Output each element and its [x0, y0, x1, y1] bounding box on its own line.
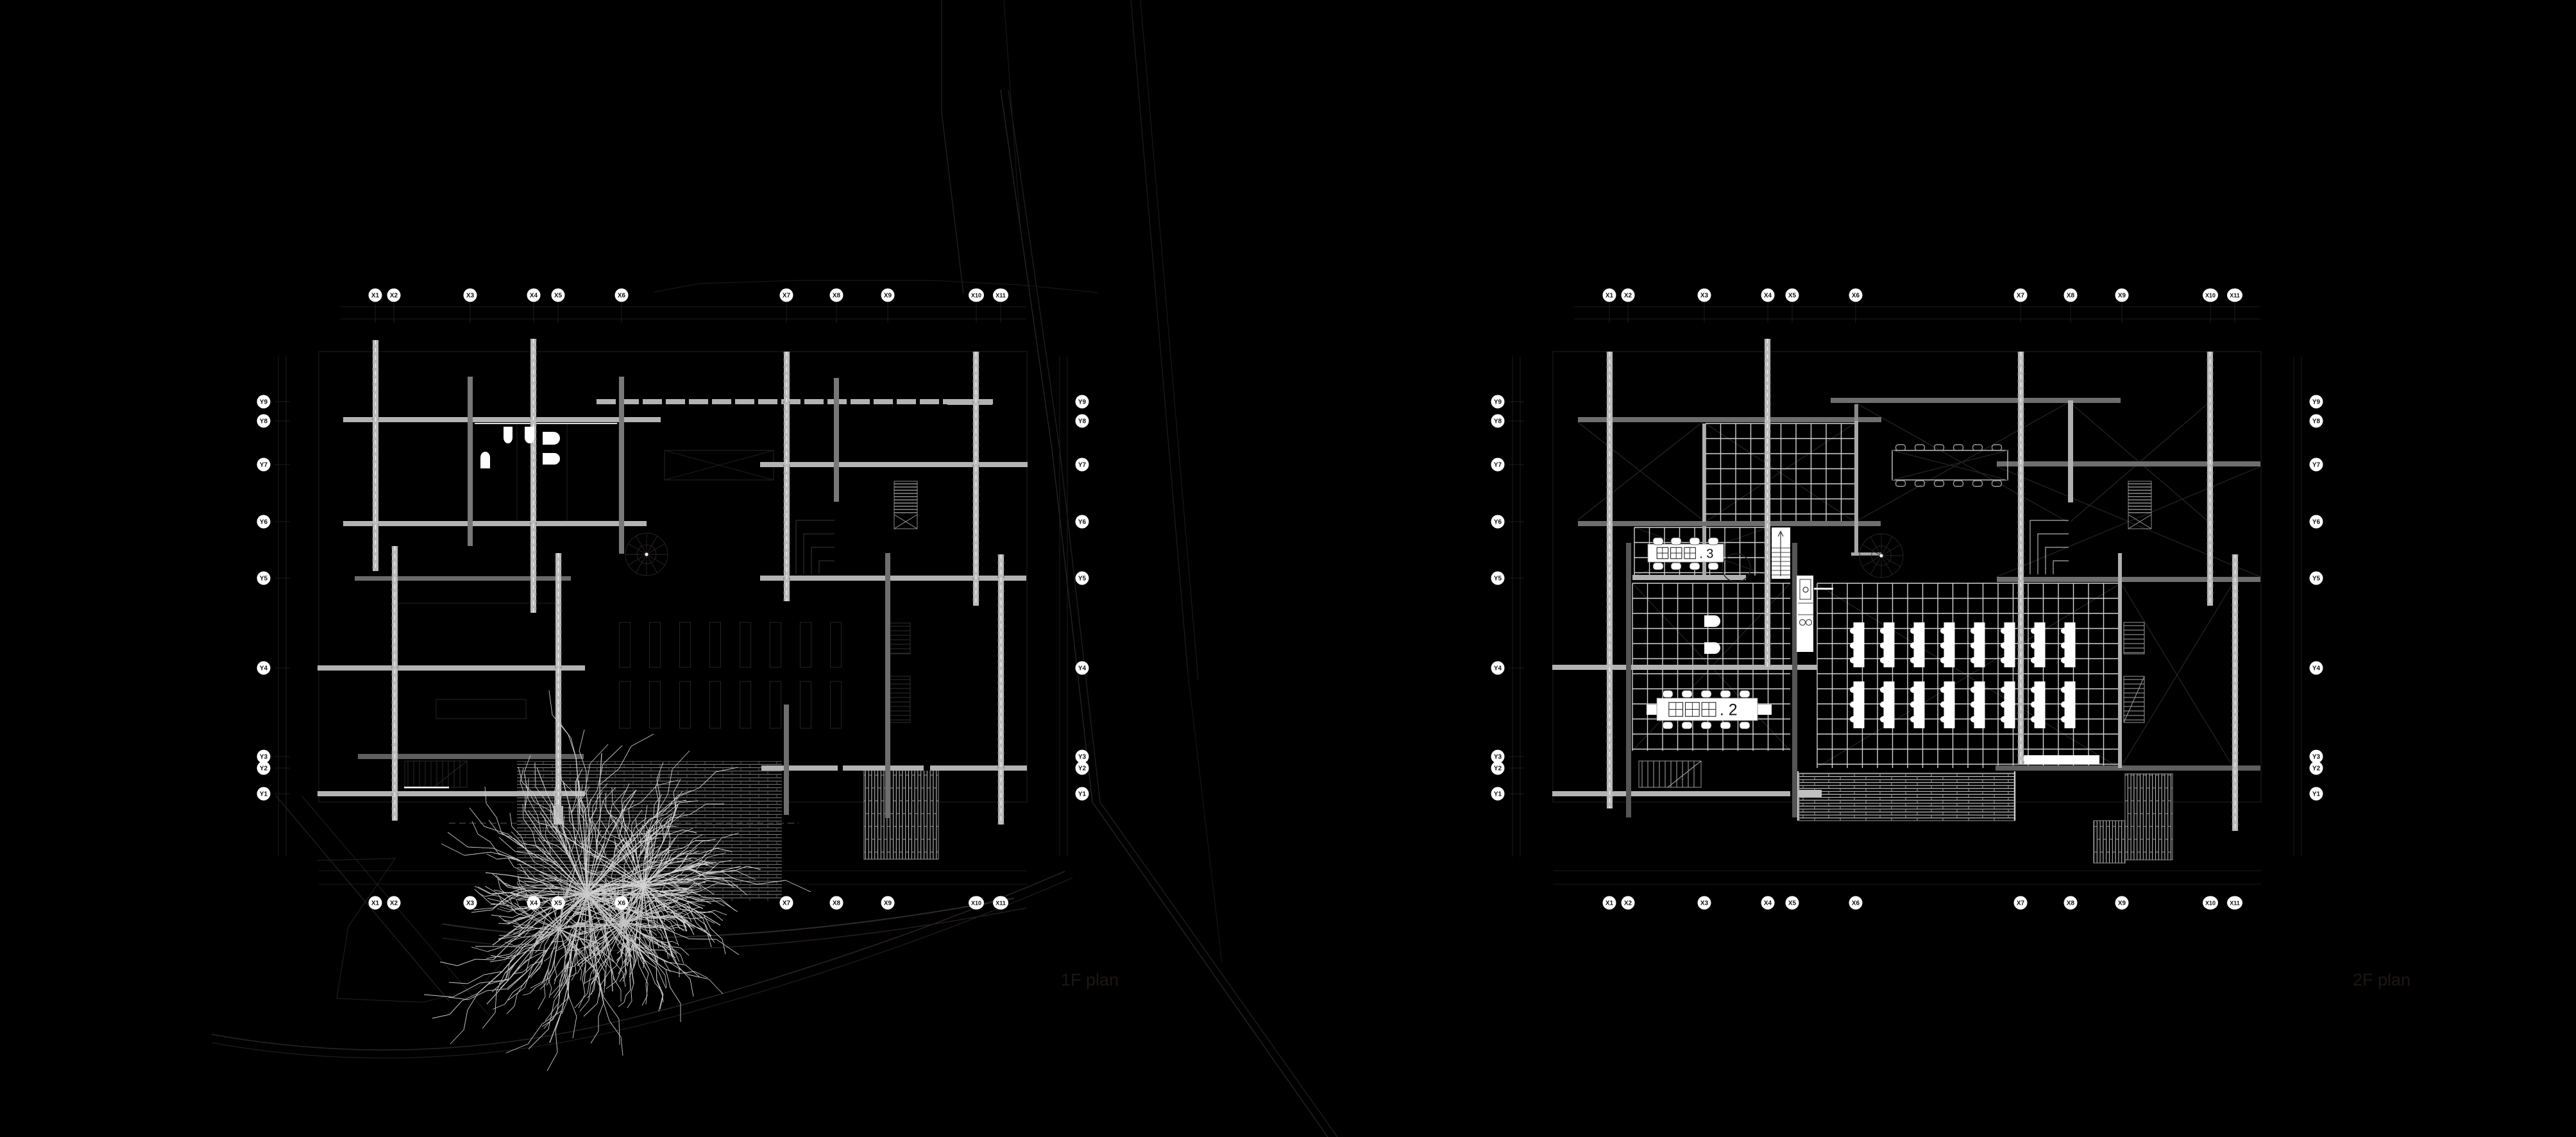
svg-text:X4: X4	[530, 292, 538, 299]
svg-text:X11: X11	[996, 292, 1006, 298]
svg-text:X5: X5	[1788, 292, 1797, 299]
svg-text:X4: X4	[1764, 900, 1772, 907]
svg-text:X11: X11	[2230, 292, 2240, 298]
svg-text:Y7: Y7	[1494, 461, 1502, 468]
svg-text:X3: X3	[1700, 292, 1709, 299]
svg-text:Y2: Y2	[1078, 765, 1087, 772]
svg-text:X3: X3	[466, 900, 475, 907]
svg-text:Y2: Y2	[260, 765, 268, 772]
svg-text:X4: X4	[530, 900, 538, 907]
svg-text:Y6: Y6	[2312, 518, 2321, 526]
svg-text:Y7: Y7	[260, 461, 268, 468]
svg-text:X8: X8	[2067, 292, 2075, 299]
svg-text:X9: X9	[2118, 900, 2126, 907]
svg-text:Y6: Y6	[1494, 518, 1502, 526]
svg-text:Y7: Y7	[1078, 461, 1087, 468]
svg-text:X2: X2	[1624, 292, 1632, 299]
svg-text:Y4: Y4	[1494, 665, 1502, 672]
svg-text:X3: X3	[466, 292, 475, 299]
svg-text:Y3: Y3	[1494, 753, 1502, 760]
svg-text:X9: X9	[884, 900, 892, 907]
svg-text:X2: X2	[390, 292, 398, 299]
svg-text:X6: X6	[618, 292, 626, 299]
svg-text:Y6: Y6	[260, 518, 268, 526]
svg-text:Y6: Y6	[1078, 518, 1087, 526]
svg-text:X7: X7	[783, 292, 791, 299]
svg-text:X5: X5	[1788, 900, 1797, 907]
svg-text:Y2: Y2	[2312, 765, 2321, 772]
svg-text:Y4: Y4	[1078, 665, 1087, 672]
svg-text:X1: X1	[371, 900, 380, 907]
svg-text:X11: X11	[996, 900, 1006, 906]
svg-text:X7: X7	[783, 900, 791, 907]
svg-text:Y7: Y7	[2312, 461, 2321, 468]
svg-text:X10: X10	[2205, 292, 2216, 298]
svg-text:X1: X1	[1606, 900, 1614, 907]
svg-text:X4: X4	[1764, 292, 1772, 299]
svg-text:Y8: Y8	[1078, 418, 1087, 425]
svg-text:Y5: Y5	[1078, 575, 1087, 582]
svg-text:Y4: Y4	[2312, 665, 2321, 672]
svg-text:X5: X5	[554, 900, 563, 907]
svg-text:X9: X9	[884, 292, 892, 299]
svg-text:X9: X9	[2118, 292, 2126, 299]
svg-text:X8: X8	[833, 900, 841, 907]
svg-text:X8: X8	[2067, 900, 2075, 907]
svg-text:Y8: Y8	[1494, 418, 1502, 425]
svg-text:X2: X2	[1624, 900, 1632, 907]
svg-text:. 3: . 3	[1699, 547, 1713, 561]
svg-text:Y1: Y1	[2312, 791, 2321, 798]
svg-text:Y3: Y3	[260, 753, 268, 760]
svg-text:Y3: Y3	[2312, 753, 2321, 760]
svg-text:X1: X1	[1606, 292, 1614, 299]
svg-text:2F plan: 2F plan	[2353, 970, 2411, 989]
svg-text:Y3: Y3	[1078, 753, 1087, 760]
svg-text:X5: X5	[554, 292, 563, 299]
svg-text:X7: X7	[2017, 292, 2025, 299]
svg-text:1F plan: 1F plan	[1061, 970, 1119, 989]
svg-text:Y1: Y1	[1494, 791, 1502, 798]
svg-text:Y8: Y8	[2312, 418, 2321, 425]
svg-text:X11: X11	[2230, 900, 2240, 906]
svg-text:Y4: Y4	[260, 665, 268, 672]
svg-text:X8: X8	[833, 292, 841, 299]
svg-text:X10: X10	[971, 900, 981, 906]
svg-text:X6: X6	[1852, 292, 1860, 299]
svg-text:X7: X7	[2017, 900, 2025, 907]
svg-text:X3: X3	[1700, 900, 1709, 907]
svg-text:Y9: Y9	[260, 398, 268, 406]
svg-text:. 2: . 2	[1720, 701, 1738, 719]
svg-text:Y8: Y8	[260, 418, 268, 425]
svg-text:X6: X6	[1852, 900, 1860, 907]
svg-text:Y5: Y5	[260, 575, 268, 582]
svg-text:X6: X6	[618, 900, 626, 907]
svg-text:Y9: Y9	[1494, 398, 1502, 406]
svg-text:Y1: Y1	[1078, 791, 1087, 798]
svg-text:X10: X10	[2205, 900, 2216, 906]
svg-text:X2: X2	[390, 900, 398, 907]
svg-text:Y5: Y5	[1494, 575, 1502, 582]
svg-text:Y9: Y9	[1078, 398, 1087, 406]
svg-text:Y5: Y5	[2312, 575, 2321, 582]
svg-text:X1: X1	[371, 292, 380, 299]
svg-text:Y2: Y2	[1494, 765, 1502, 772]
svg-text:X10: X10	[971, 292, 981, 298]
svg-text:Y1: Y1	[260, 791, 268, 798]
svg-text:Y9: Y9	[2312, 398, 2321, 406]
